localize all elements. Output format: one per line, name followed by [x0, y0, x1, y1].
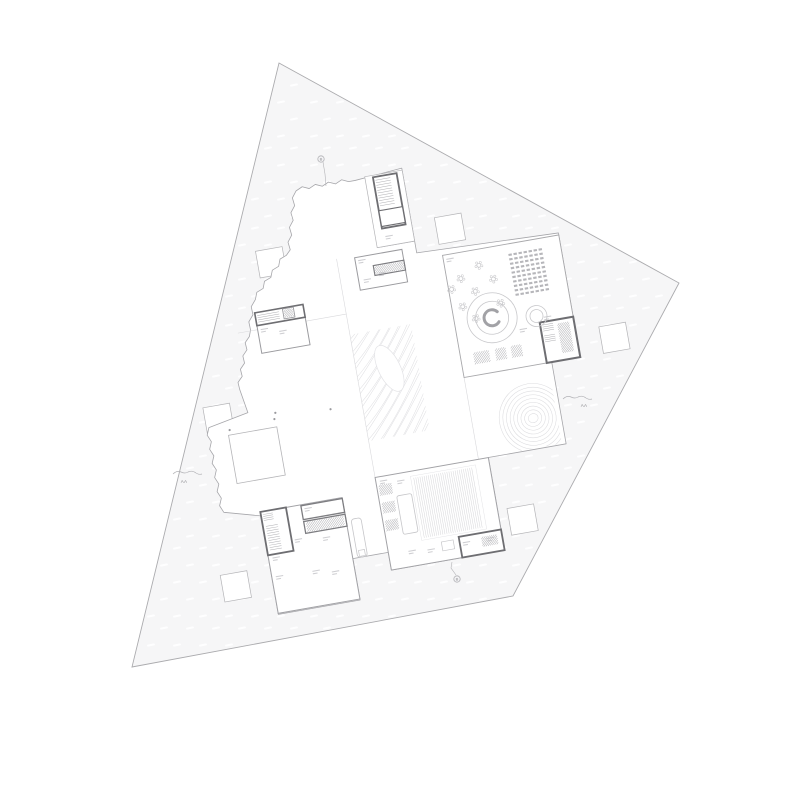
skylight-square	[507, 504, 538, 535]
skylight-square	[220, 571, 251, 602]
section-marker-label: B	[456, 576, 459, 581]
section-marker-label: AA	[581, 403, 587, 408]
skylight-square	[599, 322, 630, 353]
floor-plan-drawing: BBAAAA	[0, 0, 800, 800]
plan-canvas: BBAAAA	[0, 0, 800, 800]
skylight-square	[434, 213, 465, 244]
north-stair-cell	[379, 207, 405, 227]
section-marker-label: B	[320, 156, 323, 161]
section-marker-label: AA	[181, 479, 187, 484]
west-cell	[282, 307, 295, 319]
